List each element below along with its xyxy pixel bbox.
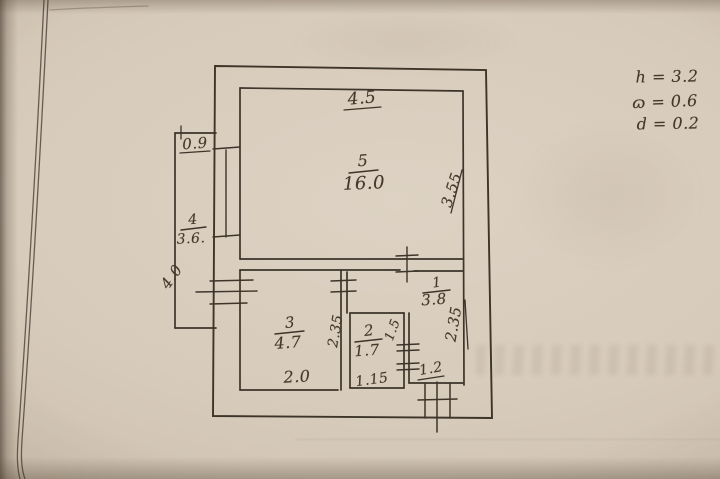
dimension-balcony-length: 4.0 xyxy=(159,262,186,291)
note-ceiling-height: h = 3.2 xyxy=(635,68,698,85)
room-3-number: 3 xyxy=(284,315,296,331)
room-4-area: 3.6. xyxy=(176,231,205,246)
handwritten-labels: 4.5 0.9 3.55 4.0 2.35 1.5 2.35 2.0 1.15 … xyxy=(0,0,720,479)
room-5-area: 16.0 xyxy=(343,174,386,193)
dimension-room3-width: 2.0 xyxy=(283,368,311,385)
dimension-entrance-width: 1.2 xyxy=(418,360,444,378)
dimension-top-width: 4.5 xyxy=(347,89,377,108)
note-omega-value: ɷ = 0.6 xyxy=(632,93,698,111)
dimension-balcony-width: 0.9 xyxy=(182,136,208,153)
room-3-area: 4.7 xyxy=(274,334,302,352)
dimension-room5-depth: 3.55 xyxy=(439,171,464,209)
floor-plan-photo: 4.5 0.9 3.55 4.0 2.35 1.5 2.35 2.0 1.15 … xyxy=(0,0,720,479)
room-1-area: 3.8 xyxy=(421,292,447,309)
dimension-corridor-depth: 2.35 xyxy=(444,305,465,342)
dimension-room2-width: 1.15 xyxy=(355,371,390,389)
room-2-number: 2 xyxy=(363,323,375,339)
room-2-area: 1.7 xyxy=(354,343,380,360)
dimension-room3-depth: 2.35 xyxy=(326,313,346,348)
dimension-room2-depth: 1.5 xyxy=(383,317,403,342)
room-5-number: 5 xyxy=(357,153,369,170)
note-d-value: d = 0.2 xyxy=(636,115,699,132)
room-4-number: 4 xyxy=(188,213,199,228)
room-1-number: 1 xyxy=(431,275,442,290)
